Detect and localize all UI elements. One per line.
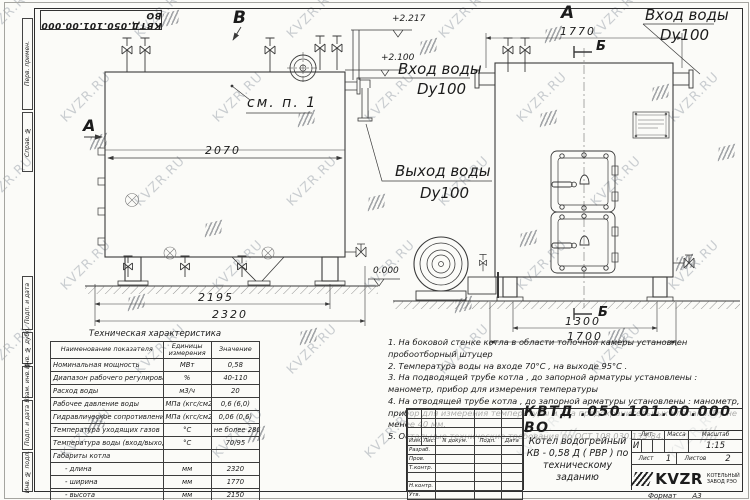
revision-row: Разраб. [408, 446, 523, 455]
sheet-label: Лист [631, 453, 661, 465]
scale-value: 1:15 [689, 440, 742, 453]
tech-row: Расход водым3/ч20 [51, 385, 260, 398]
margin-cell: Подп. и дата [22, 276, 33, 330]
revision-row: Т.контр. [408, 464, 523, 473]
format-label: Формат [648, 492, 676, 500]
dim-2320: 2320 [212, 308, 248, 321]
dim-1300: 1300 [565, 315, 601, 328]
tech-row: - длинамм2320 [51, 463, 260, 476]
note-item: 2. Температура воды на входе 70°С , на в… [388, 361, 745, 373]
revision-row: Пров. [408, 455, 523, 464]
mass-label: Масса [665, 430, 689, 440]
mass-value [665, 440, 689, 453]
margin-cell-label: Взам. инв. № [24, 361, 31, 403]
note-item: 1. На боковой стенке котла в области топ… [388, 337, 745, 361]
dim-1770: 1770 [560, 25, 596, 38]
description-line: техническому заданию [524, 460, 631, 484]
tech-table: Наименование показателяЕдиницы измерения… [50, 341, 260, 500]
view-label-a-left: А [83, 116, 95, 135]
margin-cell: Инв. № подл. [22, 452, 33, 492]
lit-cell-3 [653, 440, 665, 453]
tech-row: Рабочее давление водыМПа (кгс/см2)0,6 (6… [51, 398, 260, 411]
elevation-zero: 0.000 [373, 266, 399, 276]
inlet-left-dn: Dy100 [417, 80, 466, 98]
revision-row [408, 473, 523, 482]
tech-characteristics: Техническая характеристика Наименование … [50, 329, 260, 500]
kvzr-wave-icon [631, 472, 654, 486]
elevation-2217: +2.217 [392, 14, 425, 24]
elevation-2100: +2.100 [381, 53, 414, 63]
dim-2070: 2070 [205, 144, 241, 157]
top-stamp-box: КВТД.050.101.00.000 ВО [40, 10, 162, 30]
margin-cell: Подп. и дата [22, 400, 33, 450]
inlet-right-dn: Dy100 [660, 26, 709, 44]
description-line: КВ - 0,58 Д ( РВР ) по [527, 448, 629, 460]
company-line: ЗАВОД РЭО [707, 479, 740, 485]
margin-cell-label: Справ. № [24, 127, 31, 157]
drawing-sheet: KVZR.RUKVZR.RUKVZR.RUKVZR.RUKVZR.RUKVZR.… [0, 0, 750, 500]
sheet-value: 1 [661, 453, 677, 465]
tech-row: Температура уходящих газов°Сне более 280 [51, 424, 260, 437]
margin-cell-label: Инв. № подл. [24, 451, 31, 493]
revision-row: Утв. [408, 491, 523, 500]
format-value: А3 [692, 492, 701, 500]
view-label-a-right: А [561, 3, 574, 23]
sheets-value: 2 [714, 453, 742, 465]
inlet-right-label: Вход воды [645, 6, 729, 24]
kvzr-logo-text: KVZR [655, 470, 703, 488]
tech-row: Температура воды (вход/выход)°С70/95 [51, 437, 260, 450]
margin-cell: Инв. № дубл. [22, 332, 33, 364]
lit-value: И [631, 440, 642, 453]
company-name: КОТЕЛЬНЫЙ ЗАВОД РЭО [707, 473, 740, 485]
top-stamp-number: КВТД.050.101.00.000 ВО [41, 10, 161, 30]
view-label-b: В [233, 8, 246, 28]
sheets-label: Листов [677, 453, 714, 465]
margin-cell-label: Подп. и дата [24, 283, 31, 324]
margin-cell-label: Подп. и дата [24, 405, 31, 446]
revision-row [408, 410, 523, 419]
section-label-b-top: Б [596, 39, 606, 54]
revision-row [408, 419, 523, 428]
revision-table: Изм.ЛистN докум.Подп.ДатаРазраб.Пров.Т.к… [407, 409, 523, 490]
dim-2195: 2195 [198, 291, 234, 304]
description-line: Котел водогрейный [529, 436, 627, 448]
outlet-label: Выход воды [395, 162, 491, 180]
lit-label: Лит. [631, 430, 665, 440]
title-block-right: Лит. Масса Масштаб И 1:15 Лист 1 Листов … [631, 430, 742, 490]
tech-row: Габариты котла [51, 450, 260, 463]
revision-row [408, 428, 523, 437]
tech-row: - высотамм2150 [51, 489, 260, 500]
revision-row: Н.контр. [408, 482, 523, 491]
tech-row: Диапазон рабочего регулирования%40-110 [51, 372, 260, 385]
document-number: КВТД .050.101.00.000 ВО [523, 409, 742, 431]
scale-label: Масштаб [689, 430, 742, 440]
outlet-dn: Dy100 [420, 184, 469, 202]
lit-cell-2 [642, 440, 653, 453]
tech-row: Наименование показателяЕдиницы измерения… [51, 342, 260, 359]
left-margin-strip: Перв. примен.Справ. №Подп. и датаИнв. № … [22, 0, 34, 500]
company-logo-row: KVZR КОТЕЛЬНЫЙ ЗАВОД РЭО [631, 465, 742, 492]
tech-row: Гидравлическое сопротивление котлаМПа (к… [51, 411, 260, 424]
tech-table-title: Техническая характеристика [50, 329, 260, 339]
tech-row: - ширинамм1770 [51, 476, 260, 489]
margin-cell-label: Перв. примен. [24, 41, 31, 86]
revision-row: Изм.ЛистN докум.Подп.Дата [408, 437, 523, 446]
see-note-callout: см. п. 1 [247, 95, 317, 111]
margin-cell: Справ. № [22, 112, 33, 172]
margin-cell: Перв. примен. [22, 18, 33, 110]
document-description: Котел водогрейный КВ - 0,58 Д ( РВР ) по… [523, 430, 632, 490]
margin-cell: Взам. инв. № [22, 366, 33, 398]
note-item: 3. На подводящей трубе котла , до запорн… [388, 372, 745, 396]
format-note: Формат А3 [648, 492, 702, 500]
title-block: Изм.ЛистN докум.Подп.ДатаРазраб.Пров.Т.к… [406, 408, 743, 492]
drawing-foreground: В А А Б Б см. п. 1 Вход воды Dy100 Выход… [0, 0, 750, 500]
tech-row: Номинальная мощностьМВт0,58 [51, 359, 260, 372]
